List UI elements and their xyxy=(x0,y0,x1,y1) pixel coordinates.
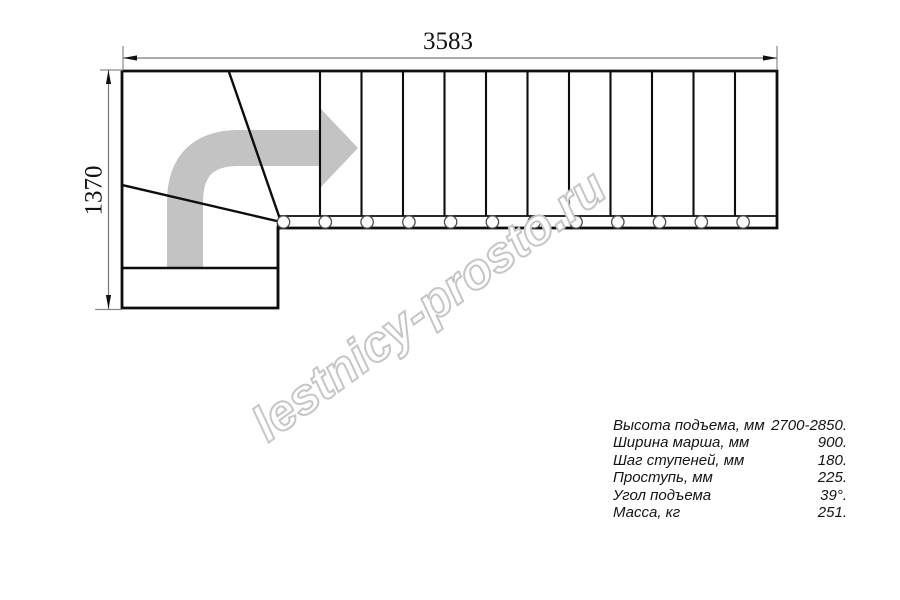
spec-label: Угол подъема xyxy=(613,487,711,504)
spec-label: Проступь, мм xyxy=(613,469,713,486)
direction-arrow-shaft xyxy=(185,148,321,268)
spec-value: 2700-2850. xyxy=(771,417,847,434)
spec-value: 39°. xyxy=(820,487,847,504)
staircase-drawing-page: lestnicy-prosto.ru 3583 1370 Высота подъ… xyxy=(0,0,900,600)
baluster-circle xyxy=(319,216,331,228)
spec-value: 180. xyxy=(818,452,847,469)
spec-row-step-pitch: Шаг ступеней, мм 180. xyxy=(613,452,847,469)
baluster-circle xyxy=(403,216,415,228)
top-dimension-value: 3583 xyxy=(398,29,498,54)
baluster-circle xyxy=(653,216,665,228)
left-dimension-arrow-bottom xyxy=(106,295,111,309)
spec-value: 225. xyxy=(818,469,847,486)
spec-value: 251. xyxy=(818,504,847,521)
step-divider-lines xyxy=(320,71,735,216)
spec-row-tread: Проступь, мм 225. xyxy=(613,469,847,486)
watermark-text: lestnicy-prosto.ru xyxy=(242,158,617,452)
direction-arrow-icon xyxy=(185,109,358,268)
direction-arrow-head xyxy=(321,109,358,187)
left-dimension-arrow-top xyxy=(106,70,111,84)
spec-table: Высота подъема, мм 2700-2850. Ширина мар… xyxy=(613,417,847,521)
baluster-circle xyxy=(444,216,456,228)
left-dimension-value: 1370 xyxy=(82,141,107,241)
baluster-circle xyxy=(695,216,707,228)
spec-row-rise-height: Высота подъема, мм 2700-2850. xyxy=(613,417,847,434)
spec-row-rise-angle: Угол подъема 39°. xyxy=(613,487,847,504)
baluster-circle xyxy=(737,216,749,228)
baluster-circle xyxy=(277,216,289,228)
spec-row-mass: Масса, кг 251. xyxy=(613,504,847,521)
spec-value: 900. xyxy=(818,434,847,451)
top-dimension-arrow-right xyxy=(763,55,777,60)
spec-label: Ширина марша, мм xyxy=(613,434,749,451)
baluster-circle xyxy=(361,216,373,228)
spec-label: Масса, кг xyxy=(613,504,680,521)
spec-label: Высота подъема, мм xyxy=(613,417,765,434)
baluster-circle xyxy=(612,216,624,228)
top-dimension-arrow-left xyxy=(123,55,137,60)
spec-row-flight-width: Ширина марша, мм 900. xyxy=(613,434,847,451)
spec-label: Шаг ступеней, мм xyxy=(613,452,744,469)
